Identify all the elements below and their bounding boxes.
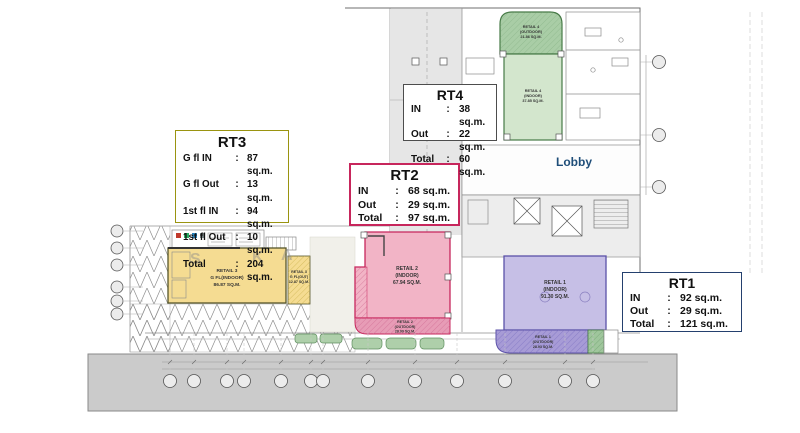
rt1-row-in: IN : 92 sq.m. <box>630 292 734 305</box>
zone-label: (OUTDOOR) <box>395 325 417 329</box>
zone-label: RETAIL 4 <box>525 89 542 93</box>
rt4-title: RT4 <box>411 87 489 104</box>
rt2-row-total: Total : 97 sq.m. <box>358 212 451 226</box>
zone-retail4-indoor: RETAIL 4 (INDOOR) 37.85 SQ.M. <box>500 51 564 140</box>
rt3-info-box: RT3 G fl IN : 87 sq.m. G fl Out : 13 sq.… <box>175 130 289 223</box>
lobby-label: Lobby <box>556 155 592 169</box>
legend-swatch-red <box>176 233 181 238</box>
zone-label: (INDOOR) <box>395 273 419 279</box>
zone-label: 91.30 SQ.M. <box>541 294 570 300</box>
zone-label: 67.94 SQ.M. <box>393 280 422 286</box>
zone-label: 21.86 SQ.M. <box>520 35 541 39</box>
zone-label: (INDOOR) <box>543 287 567 293</box>
zone-label: G FL(OUT) <box>290 275 309 279</box>
rt3-row-1fl-out: 1st fl Out : 10 sq.m. <box>183 231 281 257</box>
rt1-row-total: Total : 121 sq.m. <box>630 318 734 331</box>
zone-retail4-outdoor: RETAIL 4 (OUTDOOR) 21.86 SQ.M. <box>500 12 562 54</box>
zone-label: RETAIL 2 <box>396 266 418 272</box>
zone-label: RETAIL 1 <box>544 280 566 286</box>
rt4-row-in: IN : 38 sq.m. <box>411 104 489 129</box>
zone-label: 12.87 SQ.M. <box>289 280 309 284</box>
rt1-title: RT1 <box>630 275 734 292</box>
zone-retail1-outdoor: RETAIL 1 (OUTDOOR) 28.93 SQ.M. <box>496 330 618 353</box>
zone-label: 37.85 SQ.M. <box>522 99 543 103</box>
rt1-info-box: RT1 IN : 92 sq.m. Out : 29 sq.m. Total :… <box>622 272 742 332</box>
rt3-row-total: Total : 204 sq.m. <box>183 258 281 284</box>
zone-label: (INDOOR) <box>524 94 542 98</box>
rt2-row-in: IN : 68 sq.m. <box>358 185 451 199</box>
zone-retail1-indoor: RETAIL 1 (INDOOR) 91.30 SQ.M. <box>504 256 606 330</box>
rt3-row-1fl-in: 1st fl IN : 94 sq.m. <box>183 205 281 231</box>
rt1-row-out: Out : 29 sq.m. <box>630 305 734 318</box>
zone-retail2-indoor: RETAIL 2 (INDOOR) 67.94 SQ.M. <box>355 232 451 319</box>
zone-label: (OUTDOOR) <box>533 340 555 344</box>
zone-label: RETAIL 1 <box>535 335 551 339</box>
zone-label: 28.93 SQ.M. <box>533 345 553 349</box>
rt3-row-gfl-in: G fl IN : 87 sq.m. <box>183 152 281 178</box>
zone-label: RETAIL 3 <box>291 270 307 274</box>
zone-label: RETAIL 4 <box>523 25 540 29</box>
rt2-row-out: Out : 29 sq.m. <box>358 199 451 213</box>
zone-label: 28.99 SQ.M. <box>395 330 415 334</box>
rt4-row-out: Out : 22 sq.m. <box>411 129 489 154</box>
rt3-row-gfl-out: G fl Out : 13 sq.m. <box>183 178 281 204</box>
rt4-row-total: Total : 60 sq.m. <box>411 154 489 179</box>
zone-label: (OUTDOOR) <box>520 30 543 34</box>
rt3-title: RT3 <box>183 133 281 152</box>
zone-retail2-outdoor: RETAIL 2 (OUTDOOR) 28.99 SQ.M. <box>355 318 450 334</box>
floor-plan-page: RETAIL 3 G FL(INDOOR) 86.87 SQ.M. RETAIL… <box>0 0 800 433</box>
zone-label: RETAIL 2 <box>397 320 413 324</box>
svg-text:A: A <box>281 247 293 264</box>
rt4-info-box: RT4 IN : 38 sq.m. Out : 22 sq.m. Total :… <box>403 84 497 141</box>
